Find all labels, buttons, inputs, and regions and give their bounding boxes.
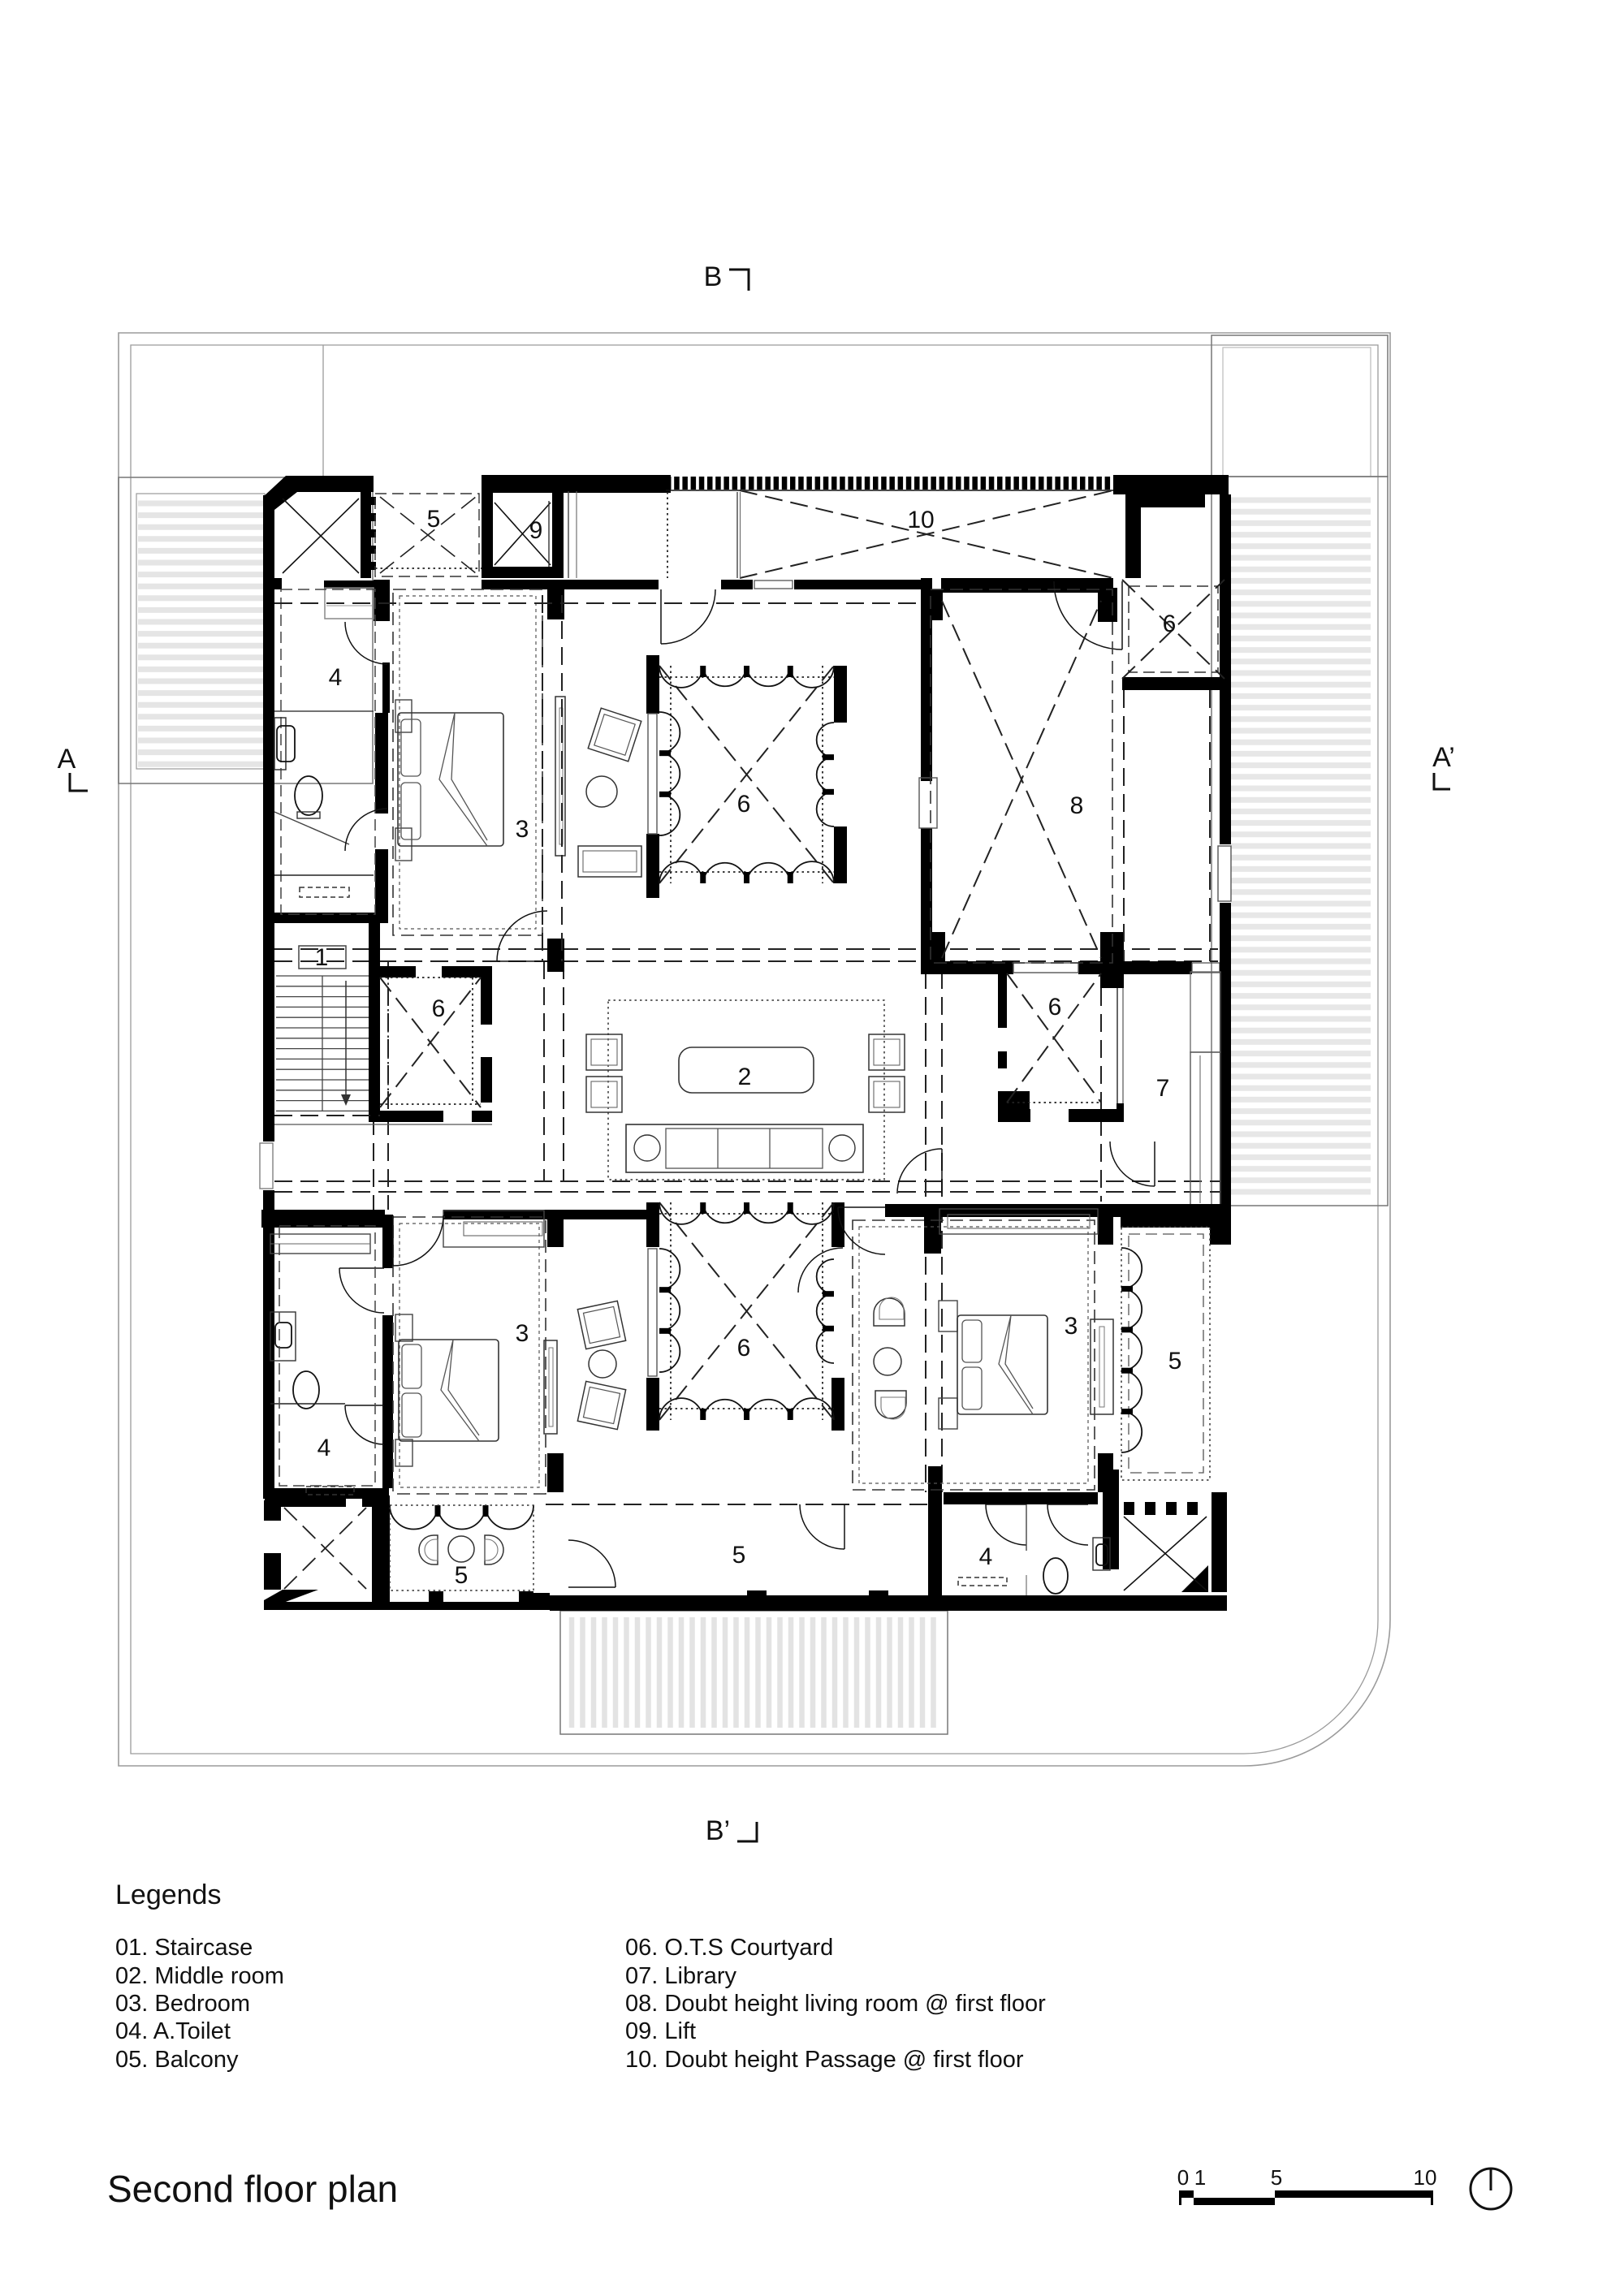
- svg-text:0: 0: [1177, 2165, 1189, 2190]
- svg-text:5: 5: [455, 1562, 469, 1589]
- svg-text:03. Bedroom: 03. Bedroom: [115, 1991, 250, 2017]
- svg-text:Second floor plan: Second floor plan: [107, 2168, 398, 2210]
- svg-text:Legends: Legends: [115, 1880, 221, 1910]
- svg-text:06. O.T.S Courtyard: 06. O.T.S Courtyard: [625, 1935, 833, 1961]
- svg-text:04. A.Toilet: 04. A.Toilet: [115, 2018, 231, 2044]
- svg-text:10: 10: [1414, 2165, 1437, 2190]
- svg-text:1: 1: [1194, 2165, 1206, 2190]
- svg-text:7: 7: [1156, 1075, 1170, 1102]
- svg-text:10: 10: [907, 507, 934, 533]
- svg-text:4: 4: [317, 1435, 331, 1461]
- svg-text:3: 3: [516, 1320, 529, 1347]
- svg-text:05. Balcony: 05. Balcony: [115, 2047, 239, 2073]
- svg-text:6: 6: [737, 1335, 751, 1362]
- svg-text:5: 5: [732, 1542, 746, 1569]
- svg-text:8: 8: [1070, 792, 1084, 819]
- svg-text:6: 6: [432, 995, 446, 1022]
- svg-text:2: 2: [738, 1064, 752, 1090]
- svg-text:09. Lift: 09. Lift: [625, 2018, 696, 2044]
- svg-text:08. Doubt height living room @: 08. Doubt height living room @ first flo…: [625, 1991, 1046, 2017]
- svg-text:5: 5: [1271, 2165, 1282, 2190]
- svg-text:5: 5: [1168, 1348, 1182, 1375]
- svg-text:4: 4: [329, 664, 343, 691]
- svg-text:5: 5: [427, 506, 441, 533]
- svg-text:4: 4: [979, 1543, 993, 1570]
- svg-text:A: A: [58, 744, 76, 775]
- svg-text:3: 3: [1065, 1313, 1078, 1340]
- svg-text:3: 3: [516, 816, 529, 843]
- svg-text:6: 6: [1163, 611, 1177, 637]
- svg-text:10. Doubt height Passage @ fir: 10. Doubt height Passage @ first floor: [625, 2047, 1024, 2073]
- svg-text:6: 6: [1048, 994, 1062, 1021]
- svg-text:9: 9: [529, 517, 543, 544]
- svg-text:A’: A’: [1432, 742, 1455, 773]
- svg-text:B’: B’: [706, 1815, 730, 1846]
- svg-text:01. Staircase: 01. Staircase: [115, 1935, 253, 1961]
- svg-text:B: B: [704, 261, 723, 292]
- svg-text:07. Library: 07. Library: [625, 1963, 737, 1989]
- svg-text:6: 6: [737, 791, 751, 818]
- svg-text:1: 1: [315, 944, 329, 971]
- svg-text:02. Middle room: 02. Middle room: [115, 1963, 284, 1989]
